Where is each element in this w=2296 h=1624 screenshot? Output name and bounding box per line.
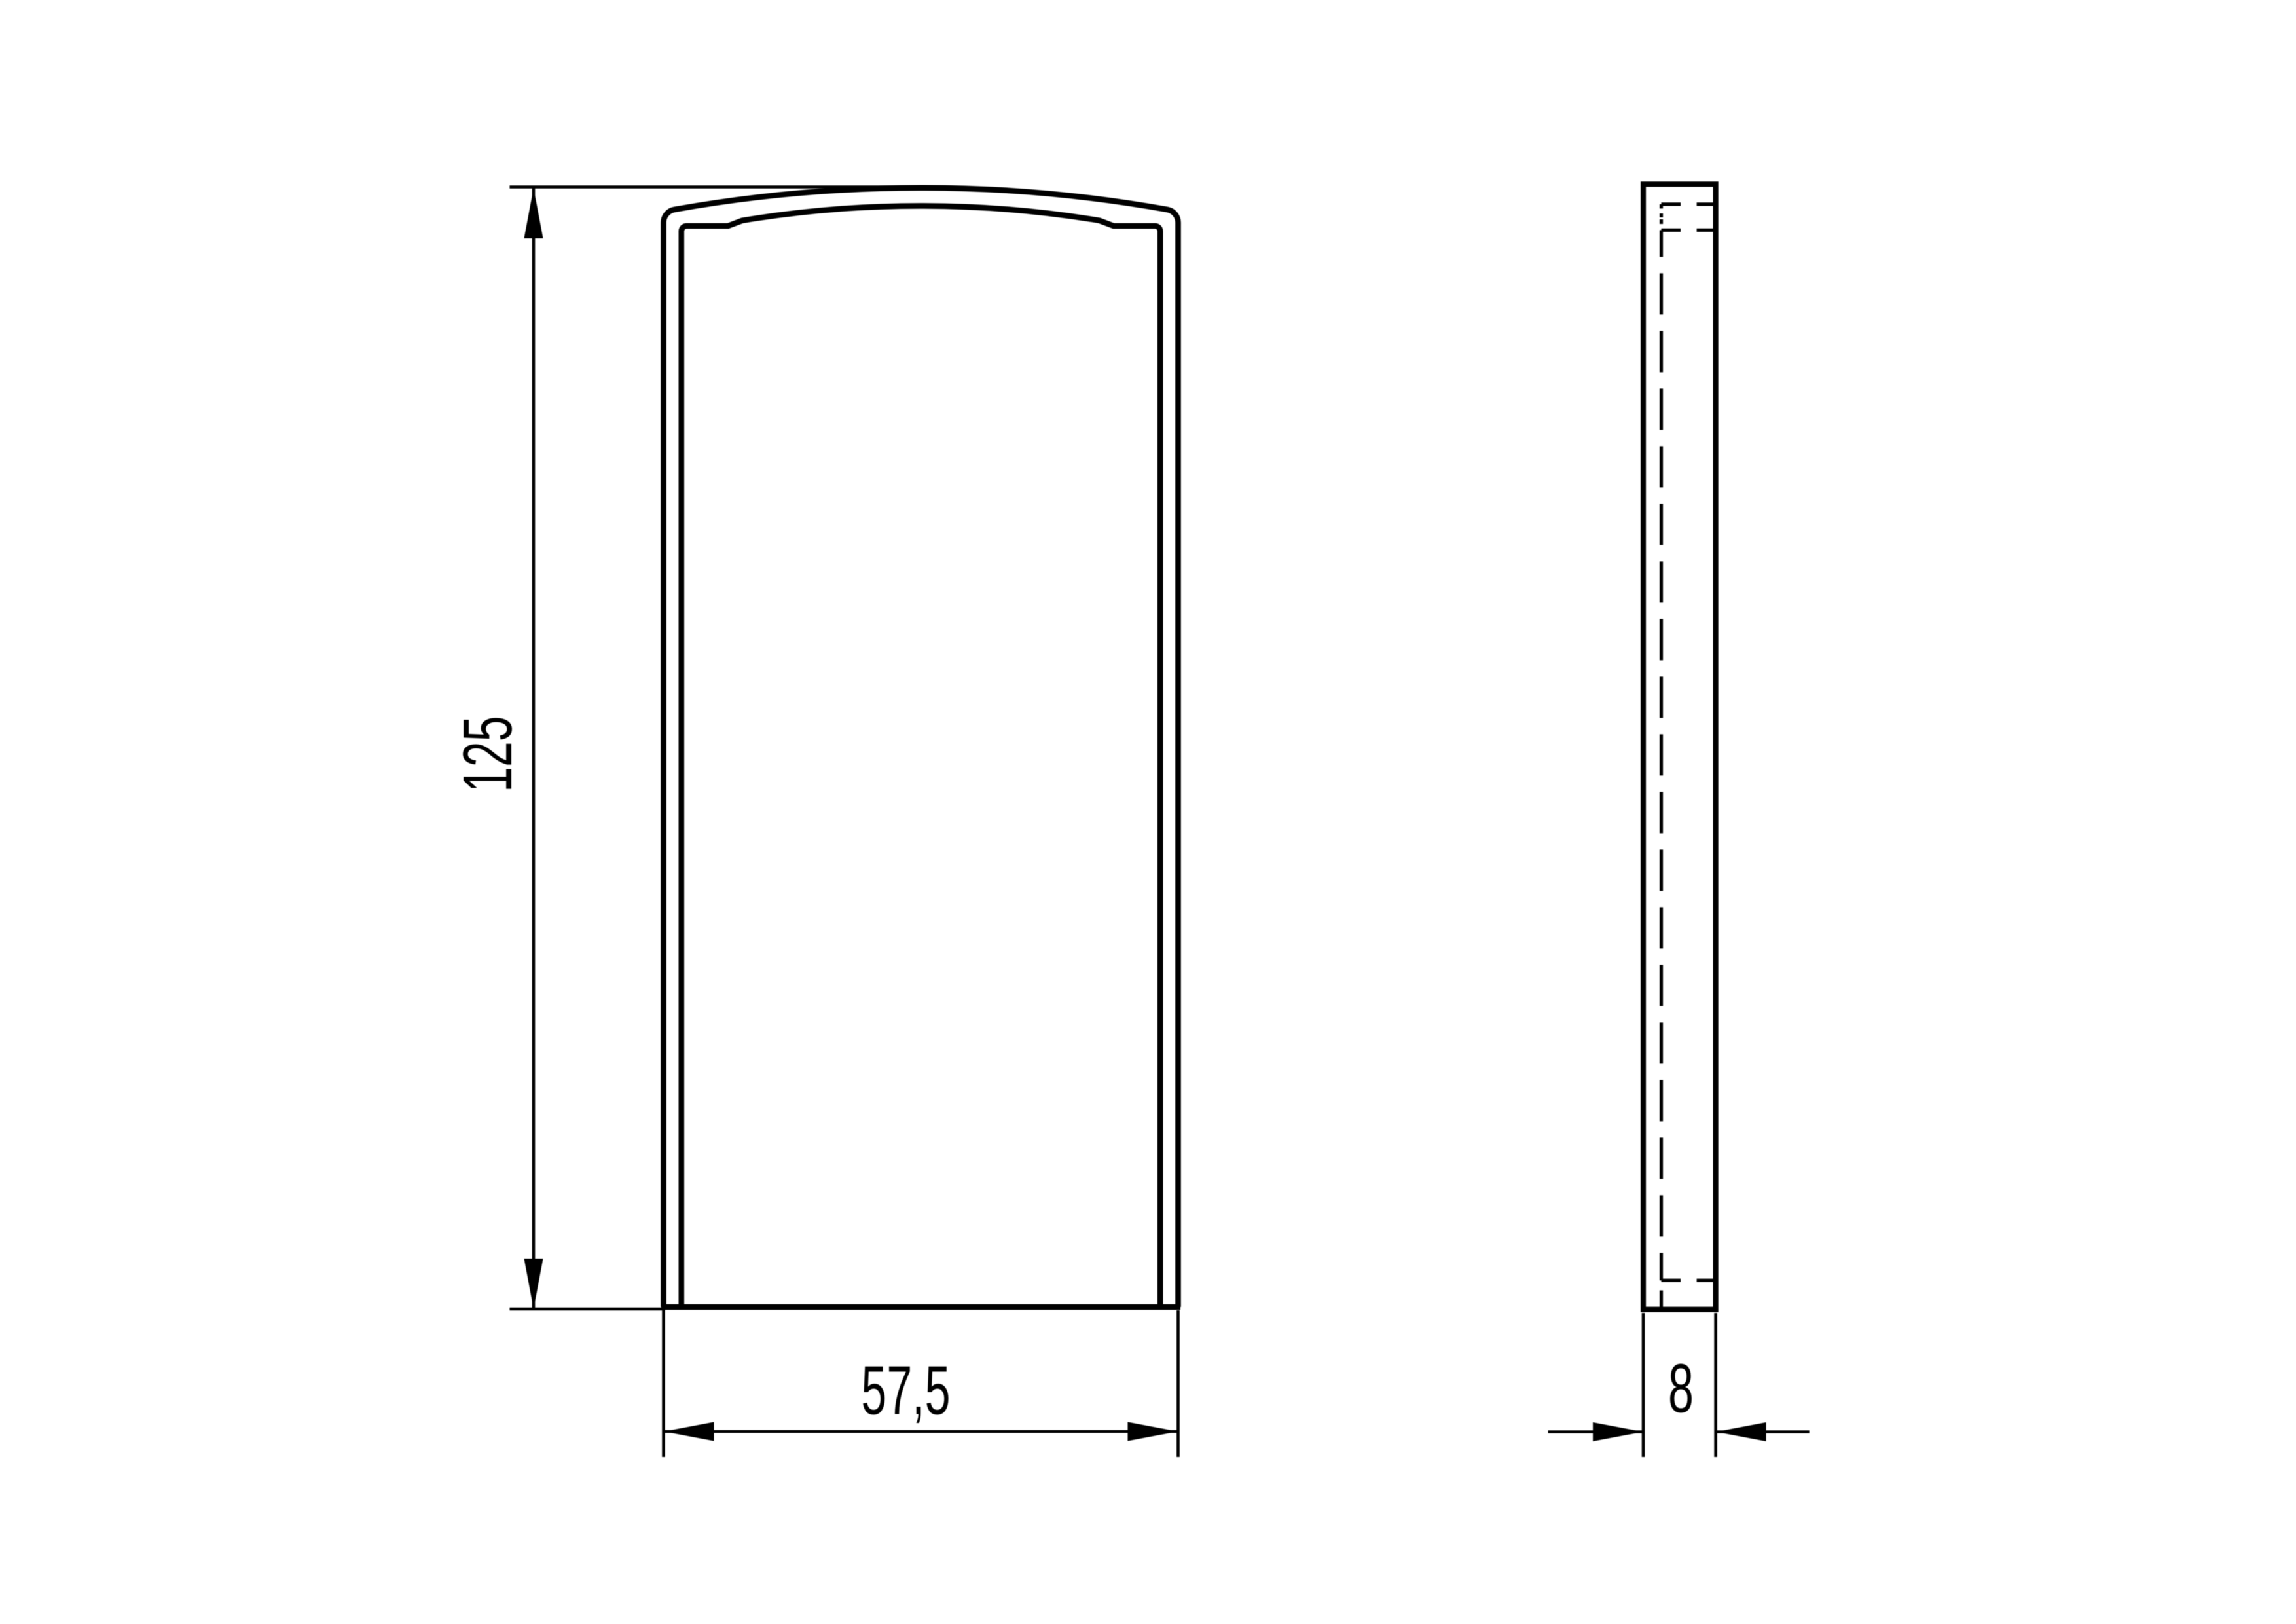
svg-text:8: 8 xyxy=(1668,1350,1694,1428)
svg-text:125: 125 xyxy=(450,716,527,792)
svg-text:57,5: 57,5 xyxy=(861,1352,950,1430)
